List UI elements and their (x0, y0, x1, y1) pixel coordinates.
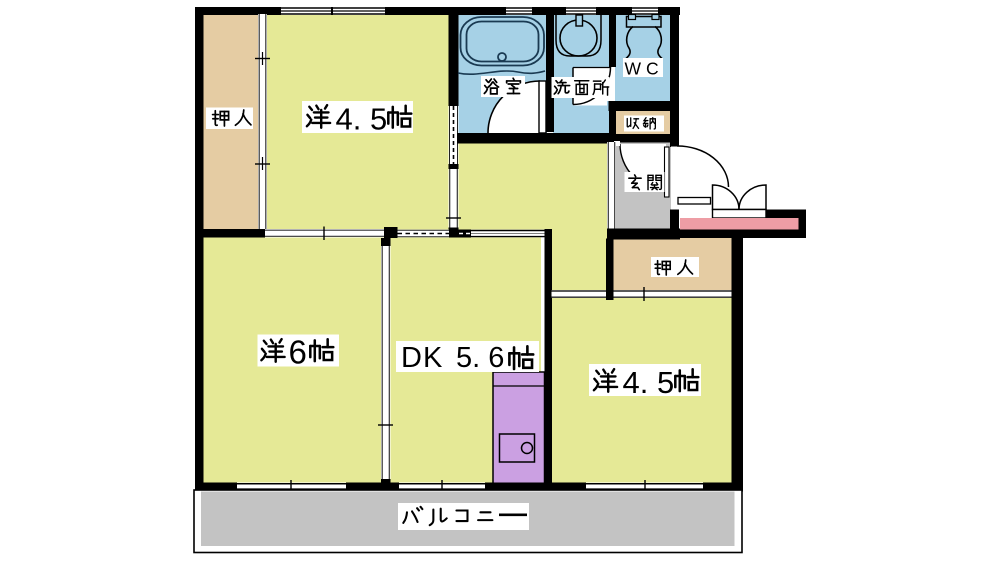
svg-text:DK: DK (401, 342, 443, 374)
svg-text:WC: WC (625, 59, 664, 79)
svg-text:4. 5: 4. 5 (336, 102, 388, 137)
svg-text:4. 5: 4. 5 (623, 365, 675, 400)
svg-text:6: 6 (289, 334, 307, 371)
svg-text:5. 6: 5. 6 (456, 342, 504, 374)
